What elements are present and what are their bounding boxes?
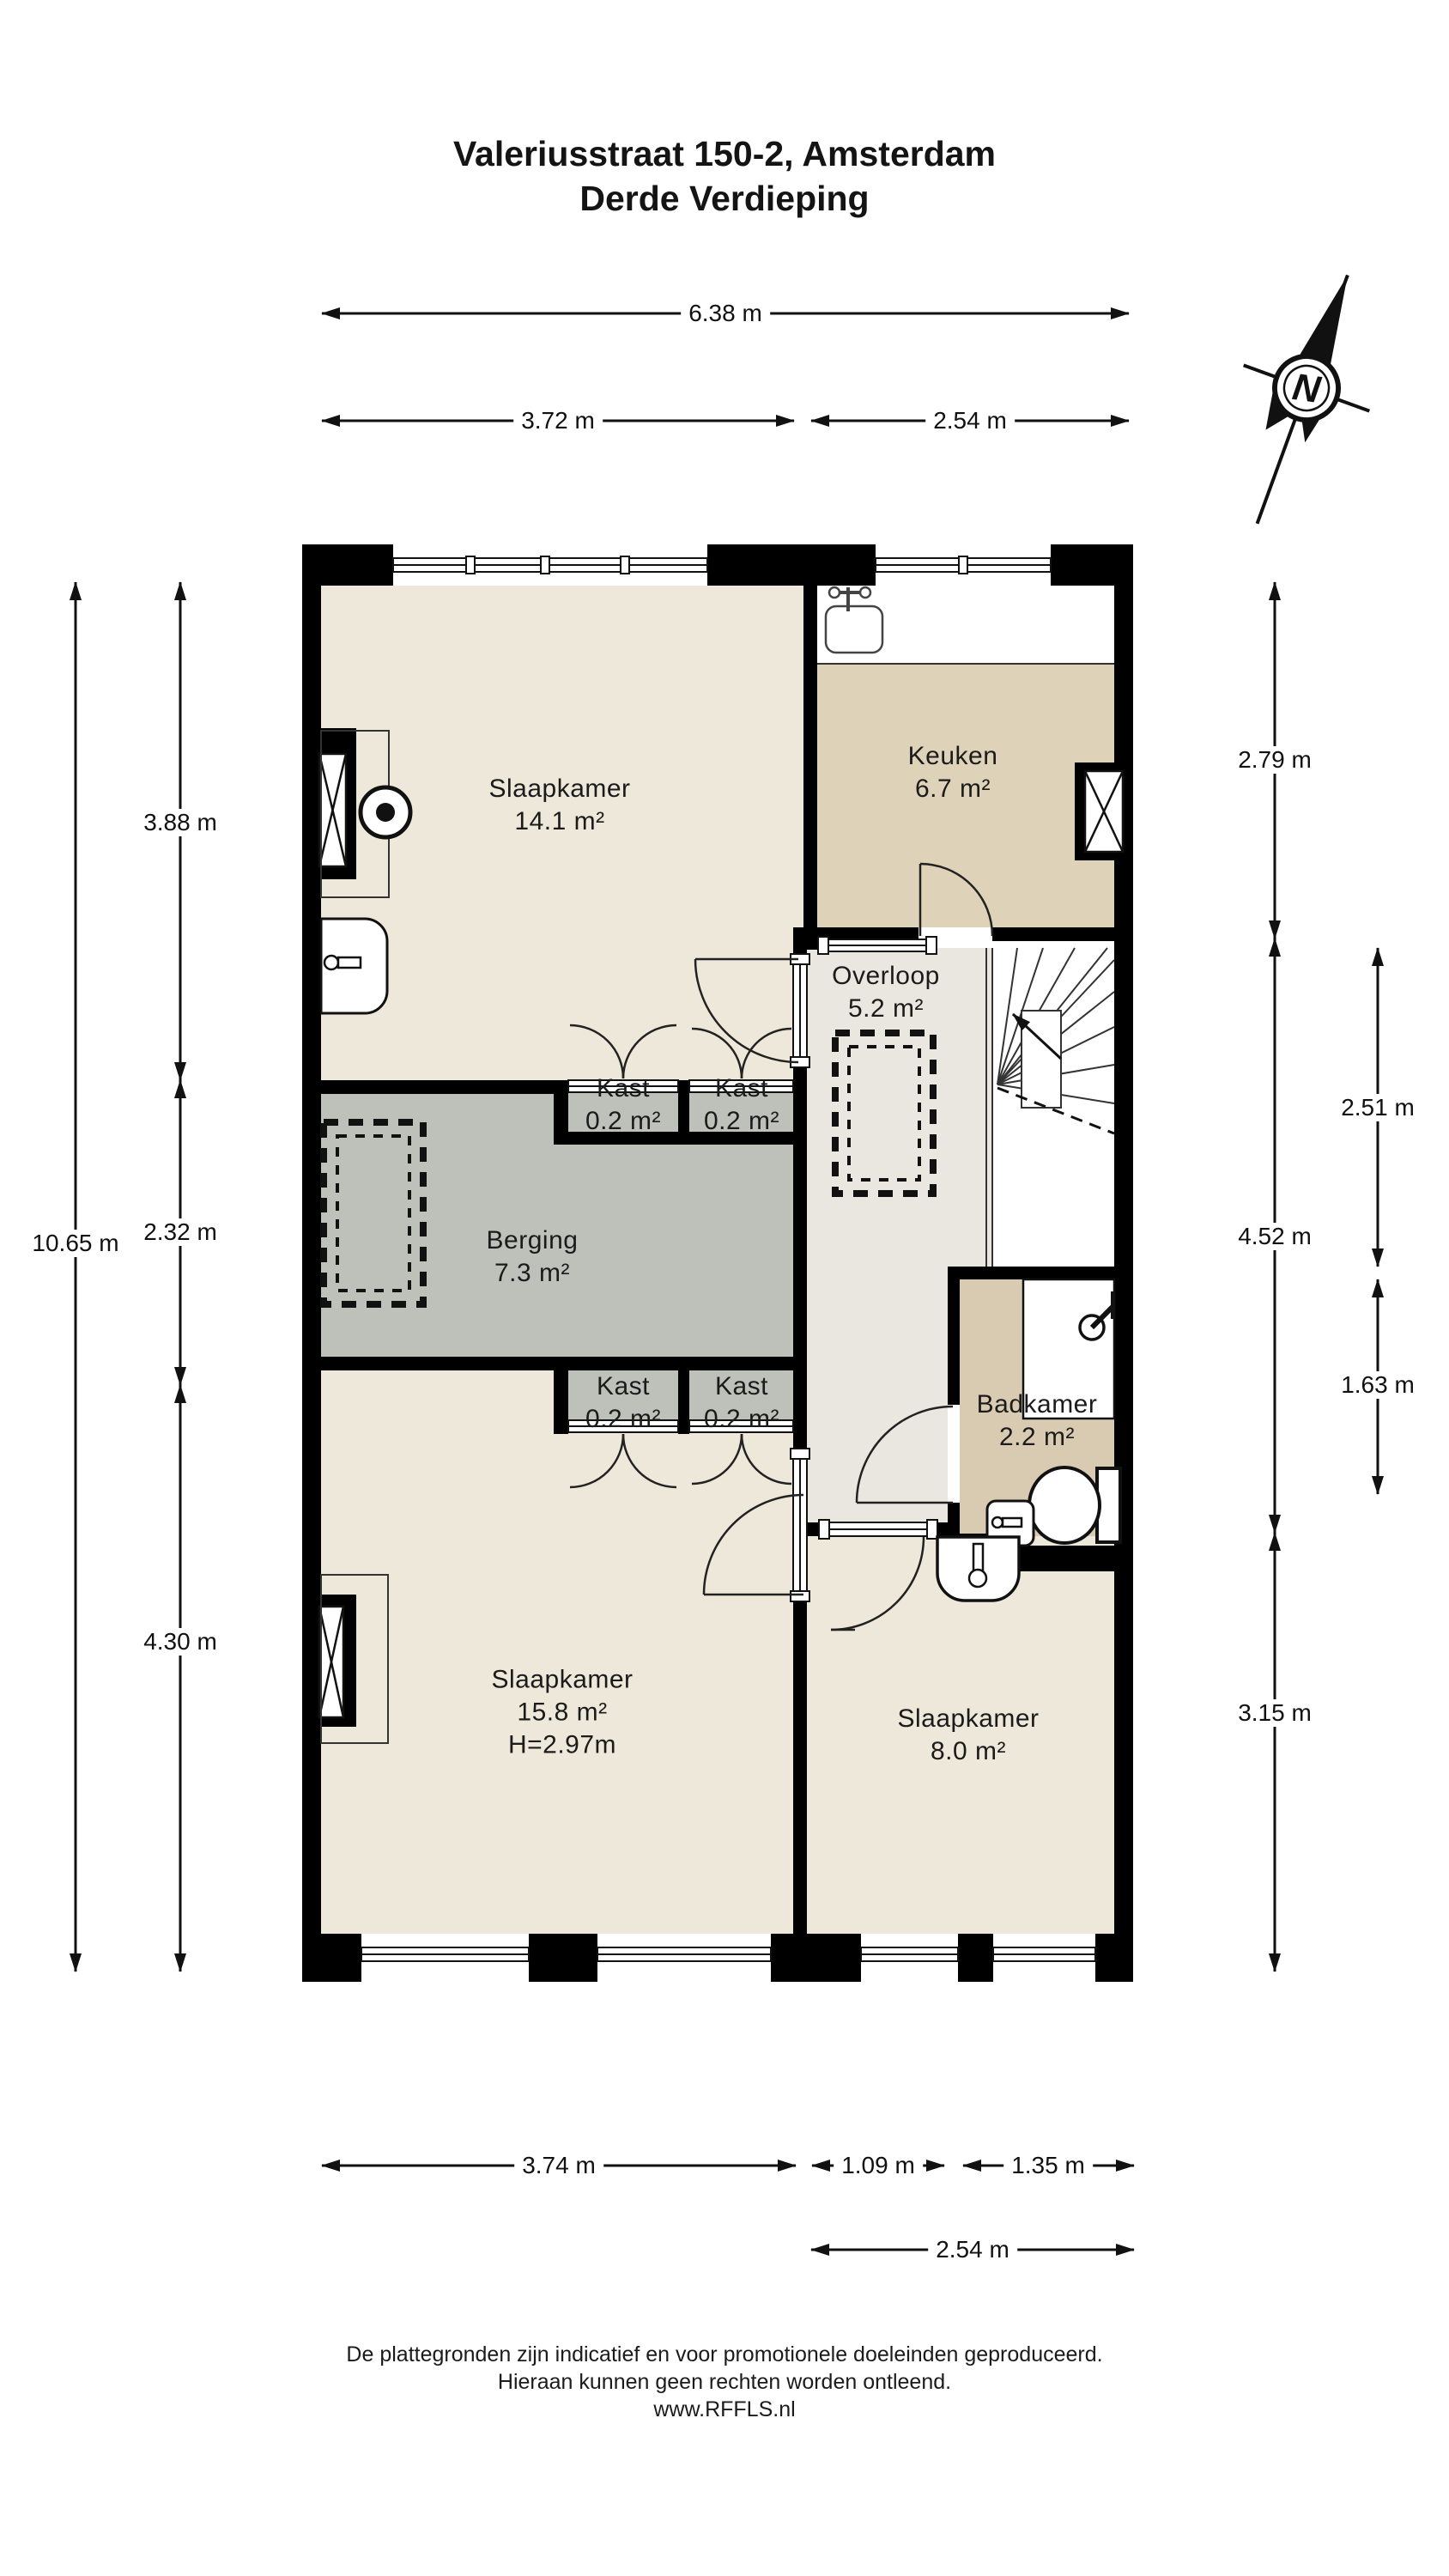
footer-disclaimer-2: Hieraan kunnen geen rechten worden ontle…: [0, 2370, 1449, 2395]
stove-icon: [361, 787, 410, 837]
room-label-slaapkamer-14: Slaapkamer14.1 m²: [488, 773, 630, 838]
dim-left-3: 4.30 m: [136, 1628, 225, 1656]
room-label-kast-2: Kast0.2 m²: [704, 1072, 779, 1138]
room-label-badkamer: Badkamer2.2 m²: [977, 1388, 1098, 1454]
dim-top-left: 3.72 m: [513, 407, 603, 434]
floorplan-linework: N: [0, 0, 1449, 2576]
dim-right-1: 2.79 m: [1230, 746, 1319, 774]
room-label-berging: Berging7.3 m²: [487, 1224, 579, 1290]
small-bedroom-sink-icon: [937, 1537, 1019, 1601]
hearth-outline: [321, 731, 389, 1743]
dim-left-total: 10.65 m: [24, 1230, 126, 1257]
compass-icon: N: [1194, 252, 1410, 547]
room-label-kast-3: Kast0.2 m²: [585, 1370, 661, 1436]
toilet-icon: [1029, 1467, 1120, 1543]
dim-bottom-4: 2.54 m: [928, 2236, 1017, 2263]
dim-right-3: 4.52 m: [1230, 1223, 1319, 1250]
dim-right-5: 3.15 m: [1230, 1699, 1319, 1727]
kitchen-sink-icon: [826, 587, 882, 653]
room-label-kast-4: Kast0.2 m²: [704, 1370, 779, 1436]
floorplan-page: Valeriusstraat 150-2, Amsterdam Derde Ve…: [0, 0, 1449, 2576]
dim-left-2: 2.32 m: [136, 1218, 225, 1246]
room-label-keuken: Keuken6.7 m²: [908, 740, 998, 805]
room-label-overloop: Overloop5.2 m²: [832, 960, 940, 1025]
dim-top-total: 6.38 m: [681, 300, 770, 327]
dim-bottom-1: 3.74 m: [514, 2152, 603, 2179]
dim-top-right: 2.54 m: [925, 407, 1015, 434]
dim-left-1: 3.88 m: [136, 809, 225, 836]
dim-right-4: 1.63 m: [1333, 1371, 1422, 1399]
footer-disclaimer-1: De plattegronden zijn indicatief en voor…: [0, 2342, 1449, 2367]
dim-bottom-2: 1.09 m: [834, 2152, 923, 2179]
room-label-slaapkamer-15: Slaapkamer15.8 m²H=2.97m: [491, 1663, 633, 1760]
footer-website: www.RFFLS.nl: [0, 2397, 1449, 2422]
stairs-icon: [986, 948, 1114, 1267]
dim-bottom-3: 1.35 m: [1003, 2152, 1093, 2179]
bedroom-sink-icon: [321, 919, 387, 1013]
room-label-kast-1: Kast0.2 m²: [585, 1072, 661, 1138]
dim-right-2: 2.51 m: [1333, 1094, 1422, 1121]
room-label-slaapkamer-8: Slaapkamer8.0 m²: [897, 1703, 1039, 1768]
